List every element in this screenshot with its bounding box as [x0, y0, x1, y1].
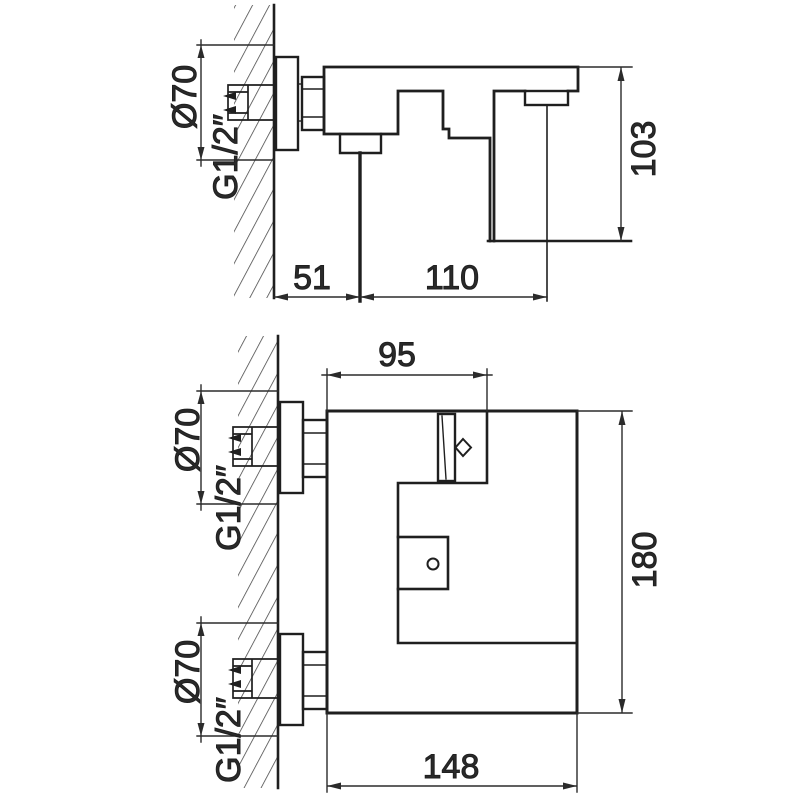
escutcheon — [280, 402, 303, 493]
side-wall-to-handle-label: 51 — [293, 259, 331, 297]
hex-nut — [303, 420, 327, 477]
front-view: Ø70 G1/2″ Ø70 G1/2″ — [169, 336, 664, 792]
diverter-button — [398, 537, 448, 589]
front-top-diameter-label: Ø70 — [169, 408, 207, 472]
front-bottom-thread-label: G1/2″ — [210, 697, 248, 783]
side-view: Ø70 G1/2″ 103 51 110 — [166, 5, 663, 301]
dim-height-180 — [577, 411, 632, 713]
front-bottom-diameter-label: Ø70 — [169, 640, 207, 704]
hex-nut-facets — [303, 665, 327, 696]
faucet-technical-drawing: Ø70 G1/2″ 103 51 110 — [0, 0, 800, 800]
handle-knob-diamond — [456, 439, 472, 456]
hex-nut-facets — [302, 89, 324, 117]
handle-hub — [340, 134, 381, 153]
handle-lever-edge — [442, 416, 446, 479]
hex-nut — [303, 652, 327, 709]
hex-nut-facets — [303, 433, 327, 464]
dim-top-width-95 — [322, 369, 492, 411]
escutcheon — [280, 634, 303, 725]
front-height-label: 180 — [626, 532, 664, 589]
front-top-width-label: 95 — [378, 336, 416, 374]
side-height-label: 103 — [625, 121, 663, 178]
side-handle-to-outlet-label: 110 — [425, 259, 479, 297]
front-top-thread-label: G1/2″ — [210, 465, 248, 551]
hex-nut — [302, 77, 324, 130]
body-outline — [327, 411, 577, 713]
technical-drawing-page: Ø70 G1/2″ 103 51 110 — [0, 0, 800, 800]
shower-outlet-fitting — [525, 91, 568, 105]
face-contour — [398, 411, 577, 643]
dim-height-103 — [578, 67, 632, 241]
diverter-pin — [428, 559, 439, 570]
escutcheon — [276, 57, 298, 150]
side-thread-size-label: G1/2″ — [207, 114, 245, 200]
side-escutcheon-diameter-label: Ø70 — [166, 65, 204, 129]
front-width-label: 148 — [423, 748, 480, 786]
handle-lever-front — [438, 414, 455, 481]
